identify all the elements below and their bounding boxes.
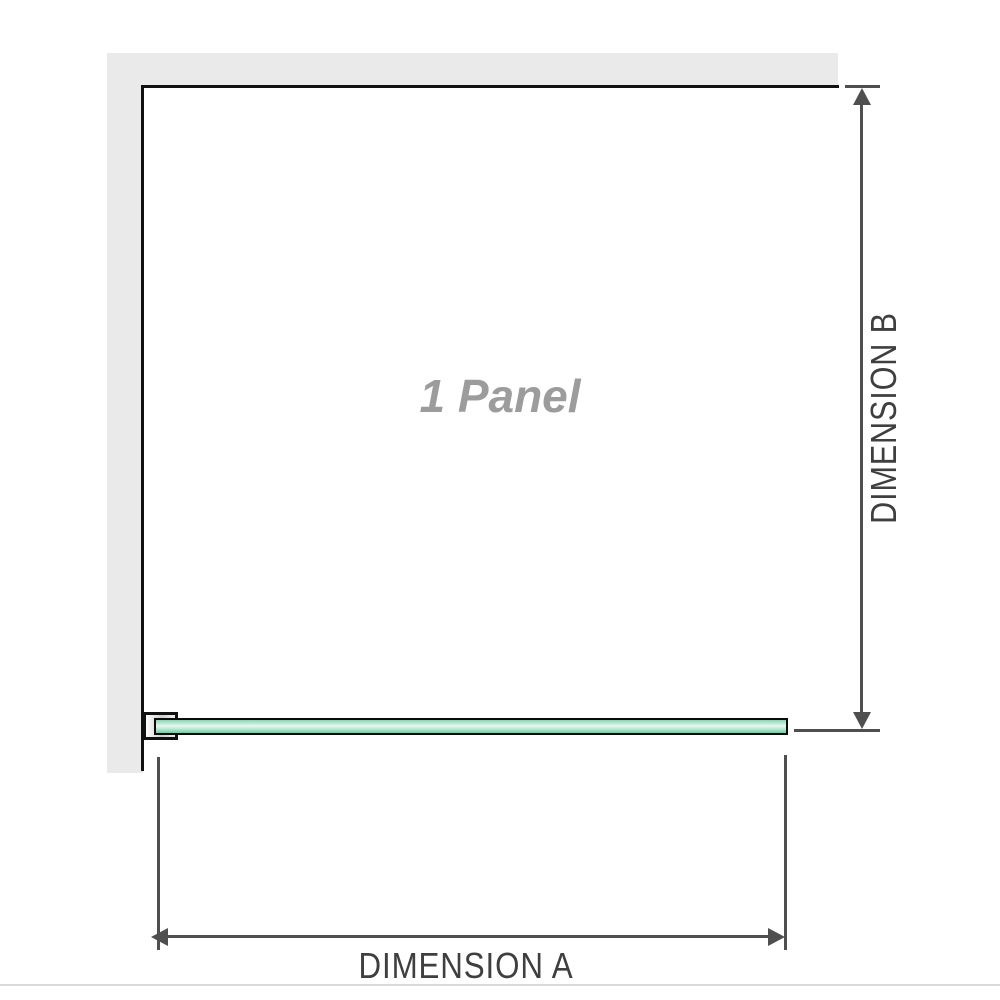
dimension-b-label: DIMENSION B [864,299,904,537]
dimension-a-right-extension-line [784,755,787,950]
bottom-divider-line [0,984,1000,986]
glass-panel [154,718,788,735]
dimension-a-line [163,935,773,938]
frame-top-line [143,85,839,88]
arrow-right-icon [768,928,785,946]
dimension-b-bottom-tick [794,729,880,732]
dimension-a-label: DIMENSION A [292,948,640,984]
frame-left-line [141,85,144,771]
shower-panel-diagram: 1 Panel DIMENSION B DIMENSION A [0,0,1000,1000]
arrow-up-icon [853,88,871,105]
dimension-a-left-extension-line [157,757,160,950]
arrow-left-icon [151,928,168,946]
arrow-down-icon [853,712,871,729]
wall-top-band [107,53,838,86]
wall-left-band [107,53,143,773]
panel-count-label: 1 Panel [330,368,670,424]
